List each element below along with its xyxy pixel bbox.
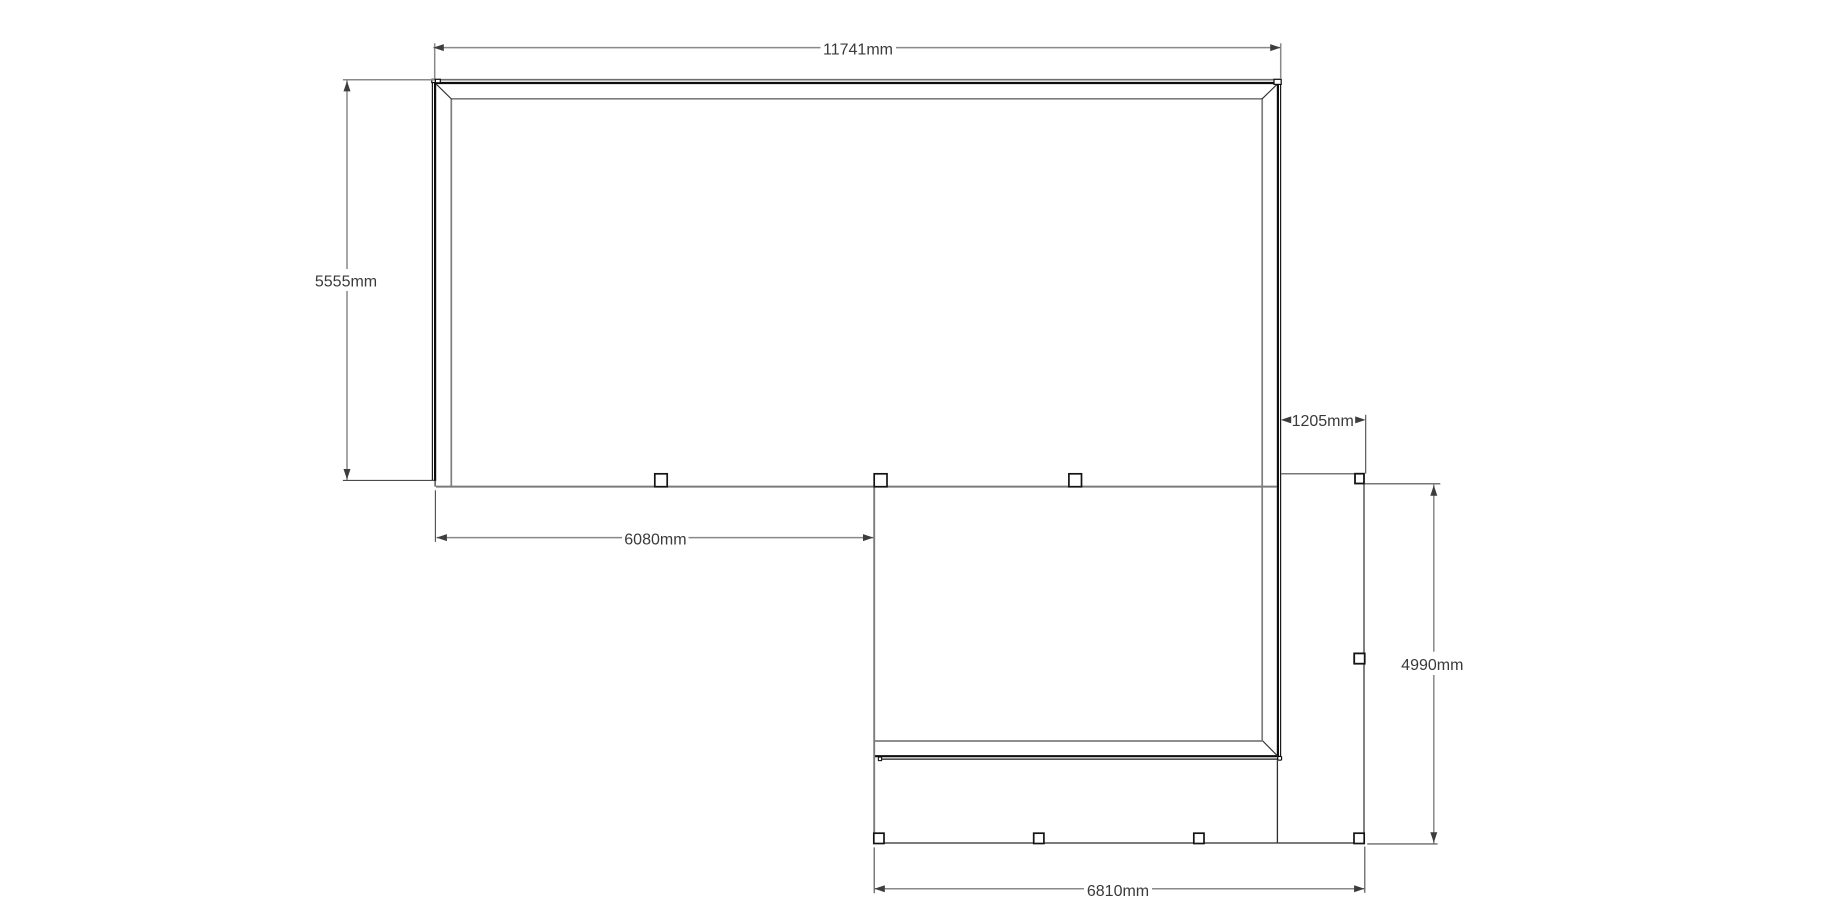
svg-text:6080mm: 6080mm <box>624 532 686 549</box>
svg-text:1205mm: 1205mm <box>1292 413 1354 430</box>
svg-text:11741mm: 11741mm <box>823 42 893 59</box>
svg-text:5555mm: 5555mm <box>315 274 377 291</box>
svg-text:6810mm: 6810mm <box>1087 883 1149 900</box>
svg-text:4990mm: 4990mm <box>1401 657 1463 674</box>
